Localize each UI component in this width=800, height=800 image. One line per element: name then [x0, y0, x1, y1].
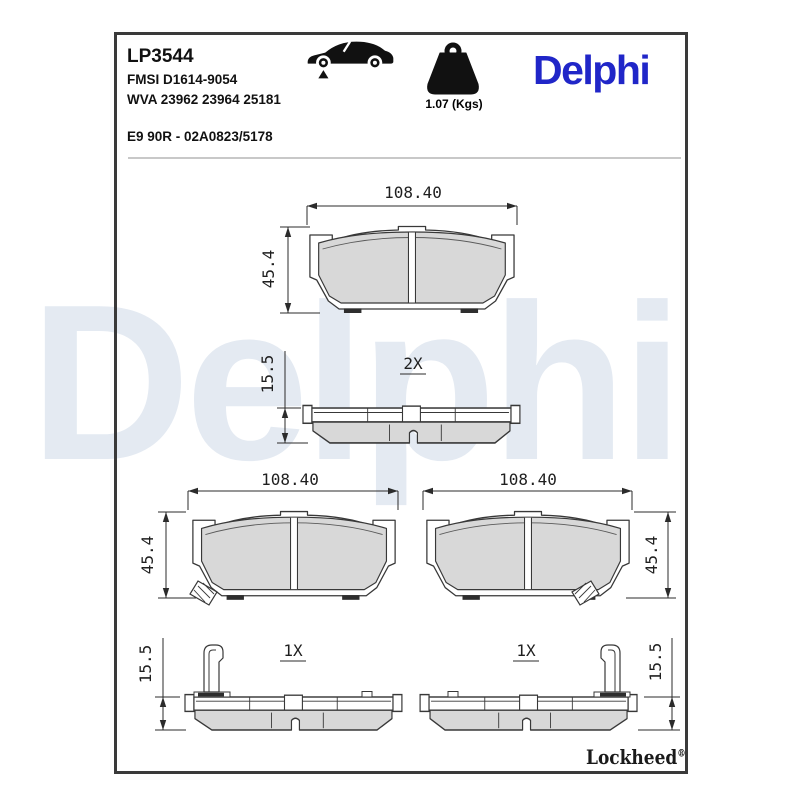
homologation-number: E9 90R - 02A0823/5178 — [127, 129, 273, 144]
quantity-label: 2X — [403, 354, 423, 373]
height-dimension-label: 45.4 — [138, 536, 157, 575]
quantity-label: 1X — [283, 641, 303, 660]
weight-icon — [422, 42, 484, 98]
brake-pad-front-view — [427, 512, 629, 600]
brake-pad-side-view — [303, 405, 520, 442]
wear-indicator-clip — [194, 645, 230, 697]
delphi-brand-logo: Delphi — [533, 50, 649, 91]
thickness-dimension-label: 15.5 — [646, 643, 665, 682]
right-front-view-drawing: 108.40 45.4 — [404, 468, 688, 610]
brake-pad-side-view — [185, 695, 402, 730]
brake-pad-front-view — [193, 512, 395, 600]
left-front-view-drawing: 108.40 45.4 — [138, 468, 404, 610]
right-side-view-drawing: 1X 15.5 — [404, 630, 688, 742]
height-dimension-label: 45.4 — [642, 536, 661, 575]
part-number: LP3544 — [127, 46, 194, 68]
registered-trademark-symbol: ® — [677, 748, 686, 759]
wva-reference: WVA 23962 23964 25181 — [127, 92, 281, 107]
quantity-label: 1X — [516, 641, 536, 660]
wear-indicator-clip — [594, 645, 630, 697]
thickness-dimension-label: 15.5 — [136, 645, 155, 684]
top-front-view-drawing: 108.40 45.4 — [258, 181, 524, 323]
left-side-view-drawing: 15.5 1X — [134, 630, 414, 742]
header-divider-line — [128, 157, 681, 159]
height-dimension-label: 45.4 — [259, 250, 278, 289]
lockheed-label: Lockheed — [586, 745, 677, 769]
brake-pad-side-view — [420, 695, 637, 730]
front-axle-marker-icon — [318, 70, 328, 78]
fmsi-reference: FMSI D1614-9054 — [127, 72, 237, 87]
brake-pad-datasheet: Delphi LP3544 FMSI D1614-9054 WVA 23962 … — [0, 0, 800, 800]
width-dimension-label: 108.40 — [499, 470, 557, 489]
width-dimension-label: 108.40 — [261, 470, 319, 489]
lockheed-brand-logo: Lockheed® — [586, 745, 686, 769]
car-side-icon — [305, 36, 397, 84]
width-dimension-label: 108.40 — [384, 183, 442, 202]
weight-value: 1.07 (Kgs) — [412, 97, 496, 111]
thickness-dimension-label: 15.5 — [258, 355, 277, 394]
top-side-view-drawing: 15.5 2X — [256, 344, 526, 452]
brake-pad-front-view — [310, 227, 514, 314]
